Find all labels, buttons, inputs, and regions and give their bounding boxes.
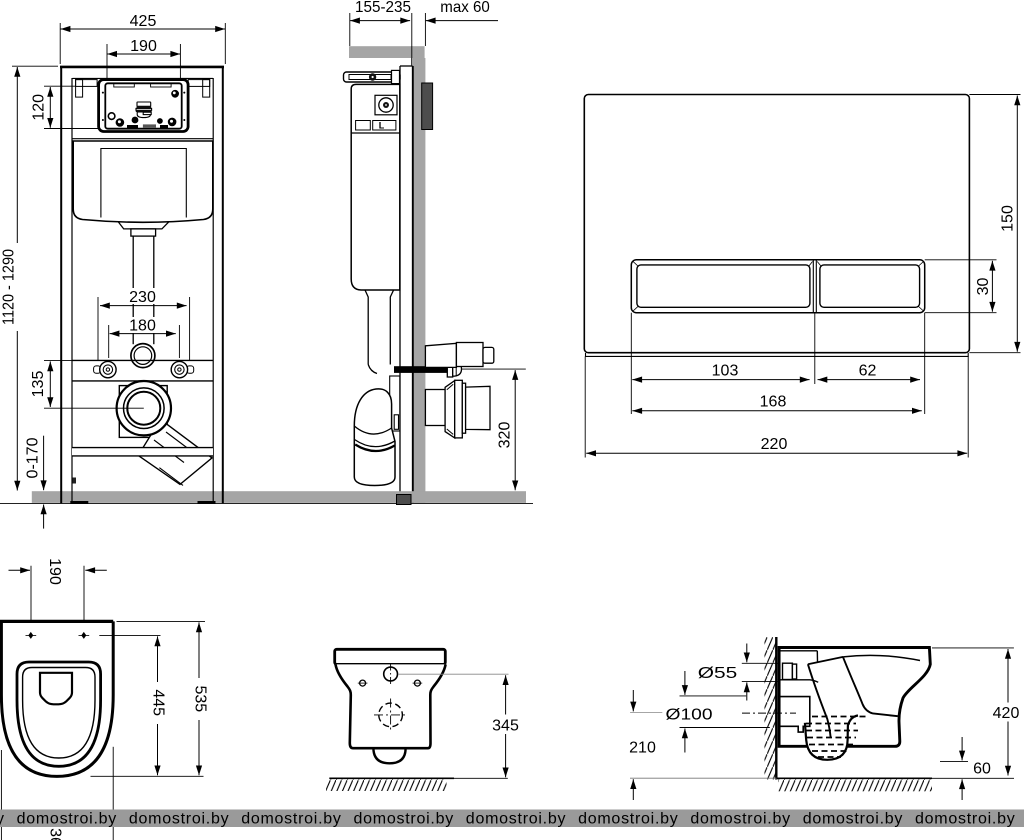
svg-text:360: 360 <box>47 828 64 840</box>
svg-text:62: 62 <box>859 363 877 380</box>
svg-text:320: 320 <box>497 422 514 449</box>
svg-text:150: 150 <box>1000 205 1017 232</box>
svg-text:L: L <box>379 121 385 131</box>
svg-text:domostroi.by: domostroi.by <box>803 810 903 827</box>
svg-text:425: 425 <box>130 13 157 30</box>
svg-text:domostroi.by: domostroi.by <box>578 810 678 827</box>
svg-text:535: 535 <box>192 685 209 712</box>
svg-text:domostroi.by: domostroi.by <box>17 810 117 827</box>
svg-text:Ø55: Ø55 <box>698 665 738 682</box>
svg-text:345: 345 <box>492 718 519 735</box>
svg-text:Ø100: Ø100 <box>666 707 713 724</box>
svg-text:0-170: 0-170 <box>25 437 42 478</box>
svg-text:155-235: 155-235 <box>355 0 411 16</box>
svg-text:135: 135 <box>30 371 47 398</box>
svg-text:domostroi.by: domostroi.by <box>241 810 341 827</box>
svg-text:domostroi.by: domostroi.by <box>690 810 790 827</box>
svg-text:30: 30 <box>975 278 992 296</box>
svg-text:190: 190 <box>130 38 157 55</box>
svg-text:max 60: max 60 <box>440 0 490 16</box>
svg-text:60: 60 <box>973 761 991 778</box>
svg-text:420: 420 <box>993 705 1020 722</box>
svg-text:230: 230 <box>129 289 156 306</box>
svg-text:domostroi.by: domostroi.by <box>915 810 1015 827</box>
svg-text:168: 168 <box>760 394 787 411</box>
svg-text:domostroi.by: domostroi.by <box>466 810 566 827</box>
svg-text:1120 - 1290: 1120 - 1290 <box>1 249 18 325</box>
svg-text:220: 220 <box>761 436 788 453</box>
svg-text:domostroi.by: domostroi.by <box>0 810 4 827</box>
svg-text:180: 180 <box>129 318 156 335</box>
svg-text:445: 445 <box>150 689 167 716</box>
svg-text:120: 120 <box>31 94 48 121</box>
svg-text:103: 103 <box>712 363 739 380</box>
svg-text:190: 190 <box>46 558 63 585</box>
svg-text:210: 210 <box>629 740 656 757</box>
svg-text:domostroi.by: domostroi.by <box>129 810 229 827</box>
svg-text:domostroi.by: domostroi.by <box>354 810 454 827</box>
